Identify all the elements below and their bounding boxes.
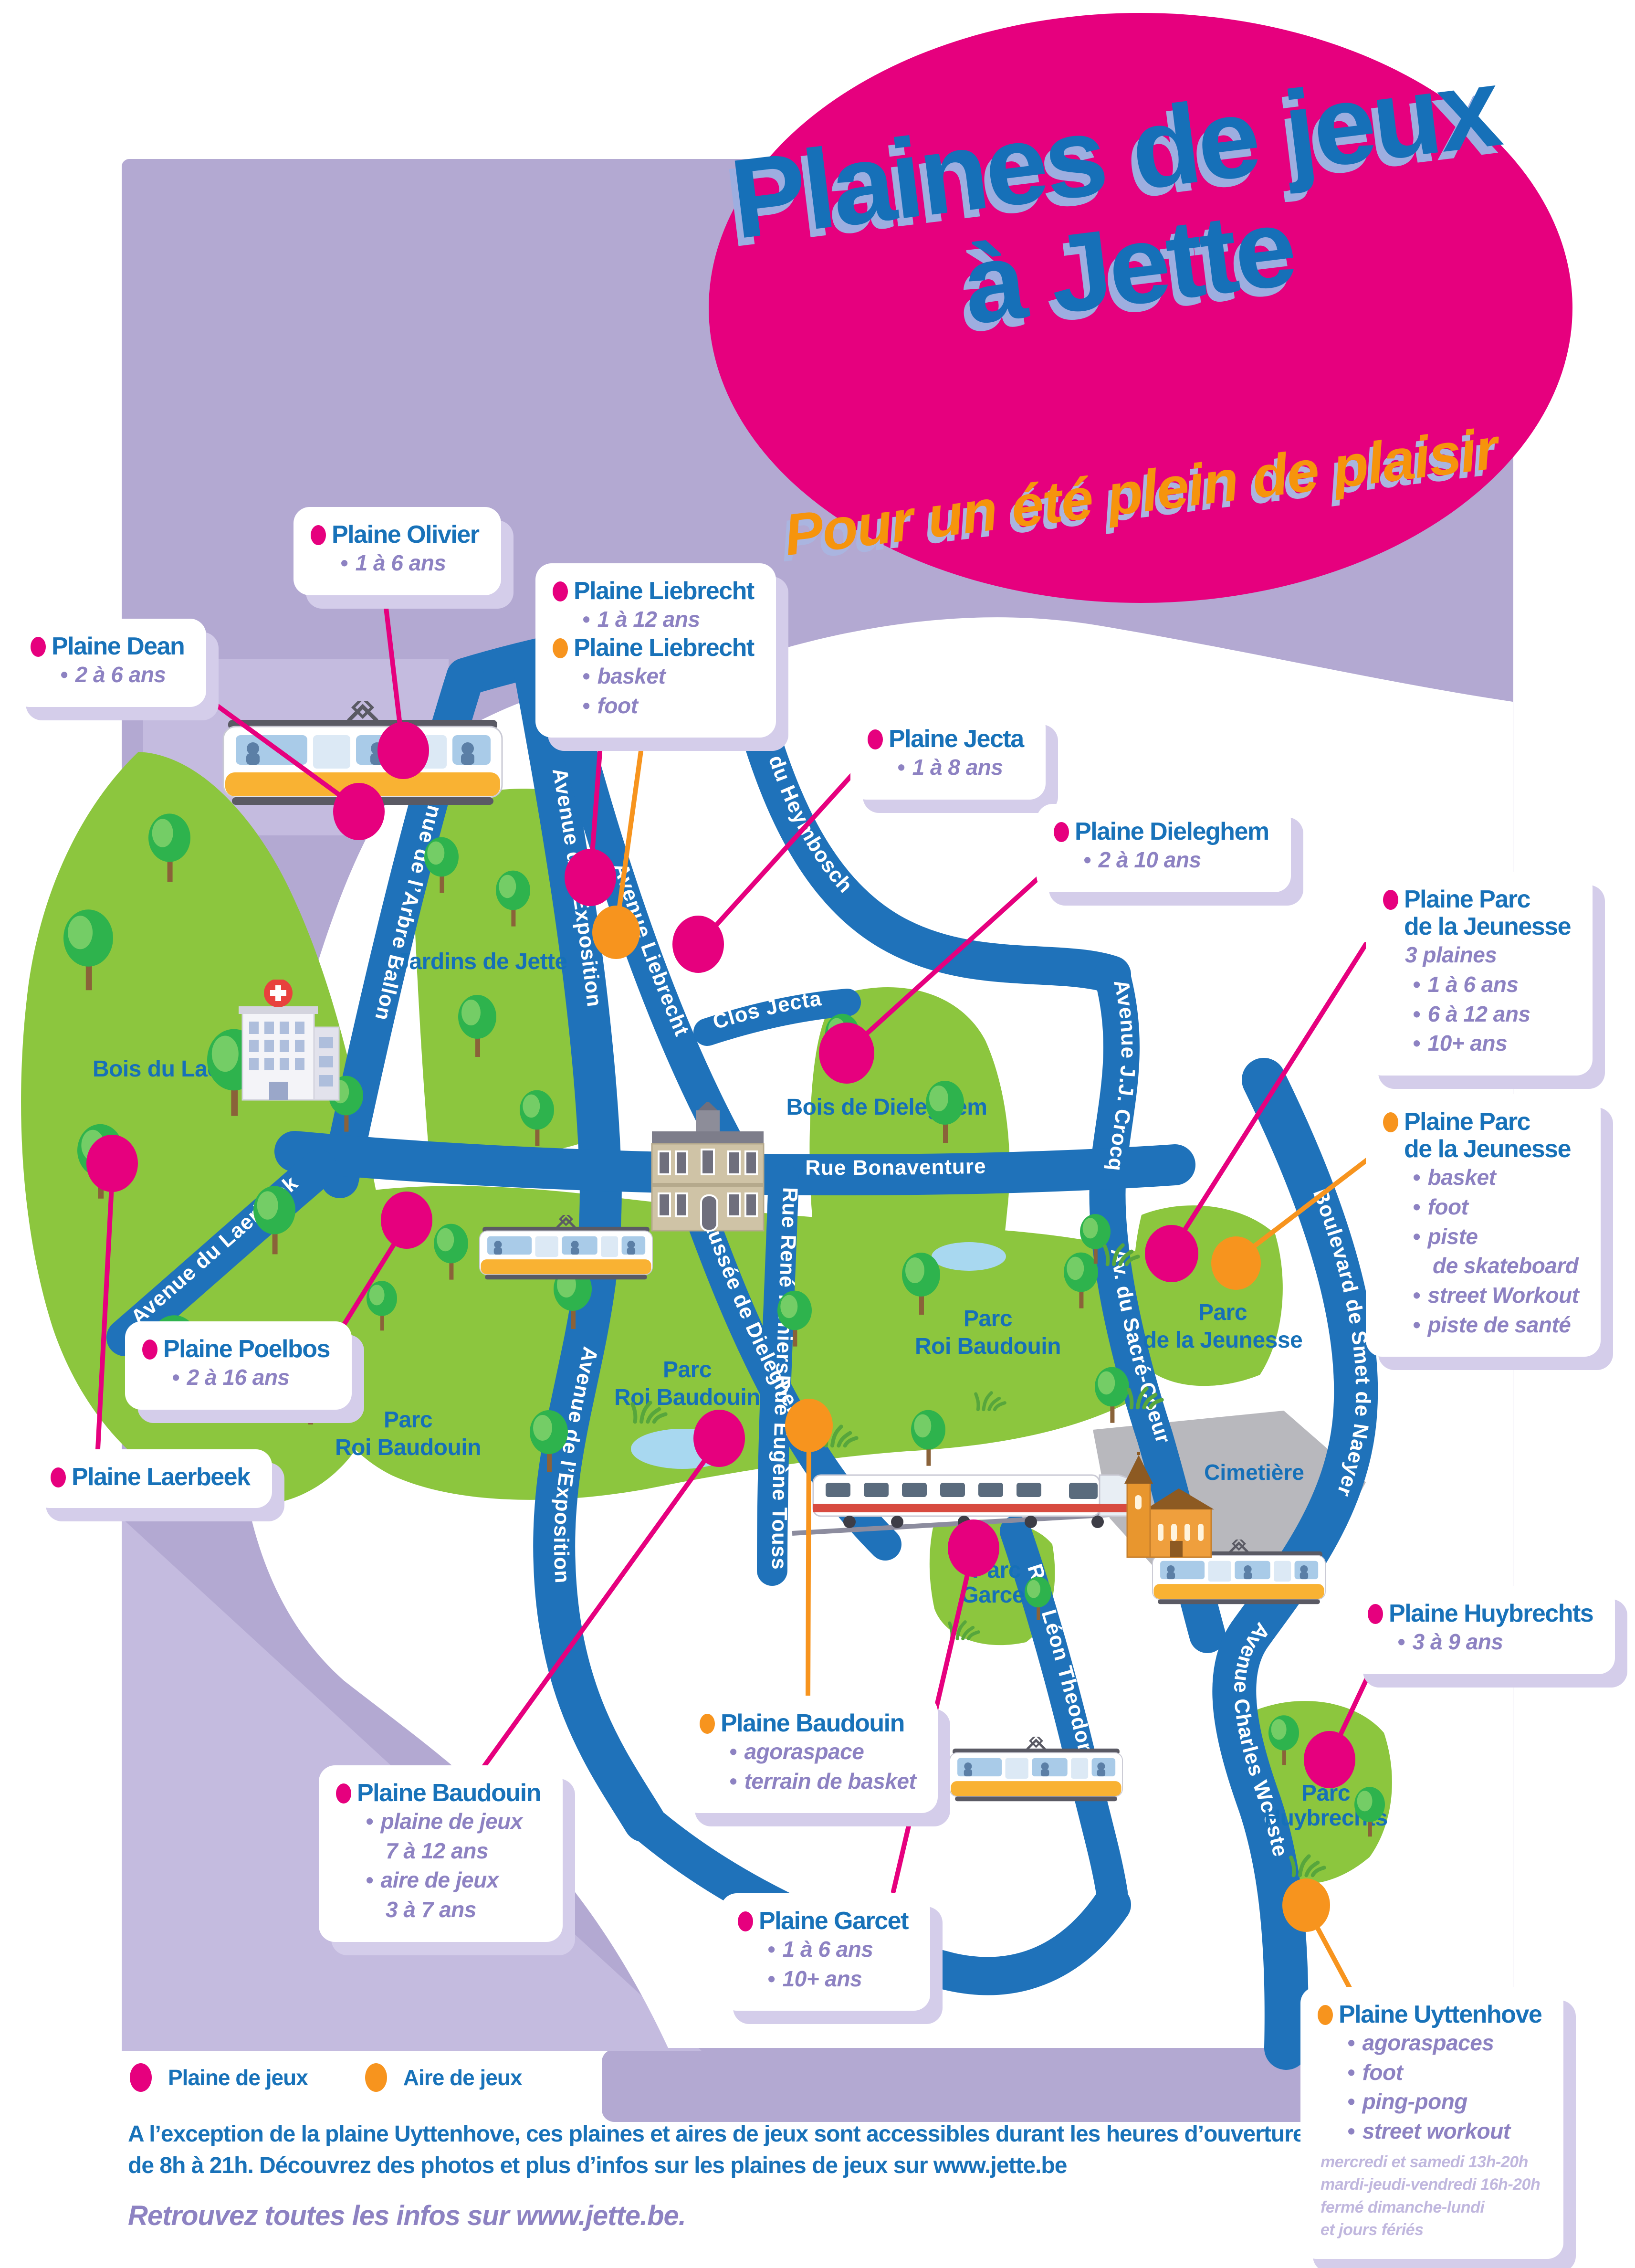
- callout-title-line1: Plaine Parc: [1404, 1108, 1571, 1136]
- label-parc-roi-baudouin-3: Parc: [964, 1306, 1012, 1331]
- callout-schedule: mardi-jeudi-vendredi 16h-20h: [1321, 2173, 1541, 2196]
- callout-item: street workout: [1347, 2117, 1541, 2146]
- callout-plaine-uyttenhove: Plaine Uyttenhove agoraspaces foot ping-…: [1300, 1987, 1563, 2259]
- footer-note: A l’exception de la plaine Uyttenhove, c…: [128, 2119, 1419, 2182]
- orange-dot-icon: [700, 1714, 715, 1734]
- callout-item-cont: 3 à 7 ans: [386, 1895, 541, 1925]
- pink-dot-icon: [31, 637, 46, 657]
- marker-uyttenhove-orange-dot: [1282, 1878, 1330, 1932]
- marker-dean-pink-dot: [333, 783, 385, 840]
- callout-title: Plaine Poelbos: [163, 1336, 330, 1363]
- pink-dot-icon: [553, 581, 568, 601]
- callout-item: terrain de basket: [729, 1767, 916, 1796]
- callout-item: basket: [582, 662, 754, 691]
- footer-line2: de 8h à 21h. Découvrez des photos et plu…: [128, 2150, 1419, 2182]
- callout-item: agoraspaces: [1347, 2028, 1541, 2058]
- legend-pink-dot-icon: [130, 2063, 152, 2092]
- callout-title: Plaine Jecta: [889, 726, 1024, 753]
- callout-item: 1 à 6 ans: [767, 1935, 908, 1964]
- callout-age: 3 à 9 ans: [1397, 1627, 1593, 1657]
- callout-title: Plaine Baudouin: [357, 1780, 541, 1807]
- callout-age: 2 à 6 ans: [60, 660, 184, 690]
- callout-note: 3 plaines: [1405, 940, 1571, 970]
- label-cimetiere: Cimetière: [1204, 1460, 1304, 1485]
- callout-schedule: mercredi et samedi 13h-20h: [1321, 2151, 1541, 2174]
- callout-plaine-jecta: Plaine Jecta 1 à 8 ans: [850, 711, 1046, 800]
- callout-title-line1: Plaine Parc: [1404, 886, 1571, 913]
- callout-item: piste de santé: [1413, 1310, 1579, 1340]
- callout-title-line2: de la Jeunesse: [1404, 1136, 1571, 1163]
- pink-dot-icon: [336, 1783, 351, 1804]
- callout-item: basket: [1413, 1163, 1579, 1192]
- callout-item: piste: [1413, 1222, 1579, 1252]
- pink-dot-icon: [142, 1340, 157, 1360]
- marker-baudouin-pink-dot: [693, 1410, 745, 1467]
- orange-dot-icon: [1318, 2005, 1333, 2025]
- callout-item: foot: [1347, 2058, 1541, 2088]
- callout-title: Plaine Laerbeek: [72, 1464, 250, 1491]
- pink-dot-icon: [1383, 890, 1398, 910]
- callout-item: 10+ ans: [1413, 1029, 1571, 1058]
- callout-title: Plaine Liebrecht: [574, 578, 754, 605]
- leader-baudouin-aire: [808, 1429, 809, 1698]
- callout-plaine-poelbos: Plaine Poelbos 2 à 16 ans: [125, 1321, 352, 1410]
- callout-aire-baudouin: Plaine Baudouin agoraspace terrain de ba…: [682, 1696, 938, 1813]
- callout-item-cont: 7 à 12 ans: [386, 1836, 541, 1866]
- label-parc-roi-baudouin-1b: Roi Baudouin: [335, 1435, 481, 1460]
- label-parc-roi-baudouin-1: Parc: [384, 1407, 432, 1433]
- callout-plaine-huybrechts: Plaine Huybrechts 3 à 9 ans: [1351, 1586, 1615, 1674]
- callout-title: Plaine Uyttenhove: [1339, 2001, 1541, 2028]
- marker-olivier-pink-dot: [377, 722, 429, 779]
- pink-dot-icon: [1368, 1604, 1383, 1624]
- callout-title: Plaine Garcet: [759, 1908, 908, 1935]
- callout-schedule: et jours fériés: [1321, 2219, 1541, 2242]
- marker-jecta-pink-dot: [672, 916, 724, 973]
- marker-dieleghem-pink-dot: [819, 1023, 874, 1084]
- marker-huybrechts-pink-dot: [1304, 1731, 1355, 1788]
- callout-title: Plaine Baudouin: [721, 1710, 904, 1737]
- callout-title-line2: de la Jeunesse: [1404, 913, 1571, 940]
- callout-item: street Workout: [1413, 1281, 1579, 1310]
- callout-item: 1 à 6 ans: [1413, 970, 1571, 1000]
- callout-age: 2 à 10 ans: [1083, 845, 1269, 875]
- callout-plaine-baudouin: Plaine Baudouin plaine de jeux 7 à 12 an…: [319, 1765, 563, 1942]
- pink-dot-icon: [311, 525, 326, 545]
- label-parc-roi-baudouin-3b: Roi Baudouin: [915, 1334, 1061, 1359]
- callout-aire-parc-jeunesse: Plaine Parc de la Jeunesse basket foot p…: [1366, 1094, 1601, 1357]
- marker-jeunesse-orange-dot: [1211, 1236, 1261, 1290]
- pink-dot-icon: [868, 729, 883, 749]
- legend-plaine-label: Plaine de jeux: [168, 2065, 308, 2090]
- callout-item: 10+ ans: [767, 1964, 908, 1994]
- callout-plaine-parc-jeunesse: Plaine Parc de la Jeunesse 3 plaines 1 à…: [1366, 872, 1593, 1076]
- footer-line1: A l’exception de la plaine Uyttenhove, c…: [128, 2119, 1419, 2150]
- legend: Plaine de jeux Aire de jeux: [130, 2063, 579, 2092]
- callout-age: 1 à 6 ans: [340, 549, 479, 578]
- pink-dot-icon: [51, 1467, 66, 1487]
- legend-orange-dot-icon: [365, 2063, 387, 2092]
- label-jardins-jette: Jardins de Jette: [397, 949, 567, 974]
- pink-dot-icon: [1054, 822, 1069, 842]
- footer-tagline: Retrouvez toutes les infos sur www.jette…: [128, 2200, 686, 2232]
- legend-aire-label: Aire de jeux: [403, 2065, 522, 2090]
- callout-item: ping-pong: [1347, 2087, 1541, 2117]
- callout-age: 2 à 16 ans: [172, 1363, 330, 1392]
- marker-liebrecht-orange-dot: [592, 906, 640, 959]
- callout-title: Plaine Dean: [52, 633, 184, 660]
- marker-laerbeek-pink-dot: [86, 1135, 138, 1192]
- marker-liebrecht-pink-dot: [565, 849, 616, 906]
- callout-title: Plaine Dieleghem: [1075, 818, 1269, 845]
- callout-item-cont: de skateboard: [1433, 1251, 1579, 1281]
- callout-age: 1 à 12 ans: [582, 605, 754, 634]
- callout-item: foot: [1413, 1192, 1579, 1222]
- callout-item: foot: [582, 691, 754, 721]
- label-parc-jeunesse: Parc: [1198, 1300, 1247, 1325]
- svg-text:Rue Bonaventure: Rue Bonaventure: [805, 1154, 986, 1180]
- callout-title: Plaine Huybrechts: [1389, 1600, 1593, 1627]
- callout-plaine-liebrecht: Plaine Liebrecht 1 à 12 ans Plaine Liebr…: [535, 563, 776, 738]
- street-label-bonaventure: Rue Bonaventure: [805, 1154, 986, 1180]
- marker-garcet-pink-dot: [948, 1519, 999, 1577]
- callout-item: aire de jeux: [366, 1866, 541, 1895]
- pond: [932, 1242, 1006, 1271]
- label-parc-roi-baudouin-2: Parc: [663, 1357, 712, 1382]
- marker-jeunesse-pink-dot: [1145, 1225, 1198, 1282]
- callout-plaine-dean: Plaine Dean 2 à 6 ans: [13, 619, 206, 707]
- orange-dot-icon: [1383, 1112, 1398, 1132]
- poster: Avenue de l’Arbre Ballon Avenue de l’Exp…: [0, 0, 1635, 2268]
- callout-age: 1 à 8 ans: [897, 753, 1024, 782]
- callout-item: plaine de jeux: [366, 1807, 541, 1836]
- label-parc-jeunesse-b: de la Jeunesse: [1143, 1328, 1303, 1353]
- pink-dot-icon: [738, 1911, 753, 1931]
- marker-poelbos-pink-dot: [381, 1192, 432, 1249]
- marker-baudouin-orange-dot: [785, 1399, 833, 1452]
- callout-title: Plaine Olivier: [332, 521, 479, 549]
- callout-plaine-olivier: Plaine Olivier 1 à 6 ans: [293, 507, 501, 595]
- callout-title: Plaine Liebrecht: [574, 634, 754, 662]
- callout-plaine-garcet: Plaine Garcet 1 à 6 ans 10+ ans: [721, 1893, 930, 2011]
- orange-dot-icon: [553, 638, 568, 658]
- label-parc-garcet-b: Garcet: [961, 1582, 1032, 1608]
- callout-plaine-laerbeek: Plaine Laerbeek: [33, 1449, 272, 1508]
- callout-schedule: fermé dimanche-lundi: [1321, 2196, 1541, 2219]
- callout-item: agoraspace: [729, 1737, 916, 1767]
- callout-item: 6 à 12 ans: [1413, 1000, 1571, 1029]
- label-parc-roi-baudouin-2b: Roi Baudouin: [614, 1385, 760, 1410]
- callout-plaine-dieleghem: Plaine Dieleghem 2 à 10 ans: [1037, 804, 1291, 892]
